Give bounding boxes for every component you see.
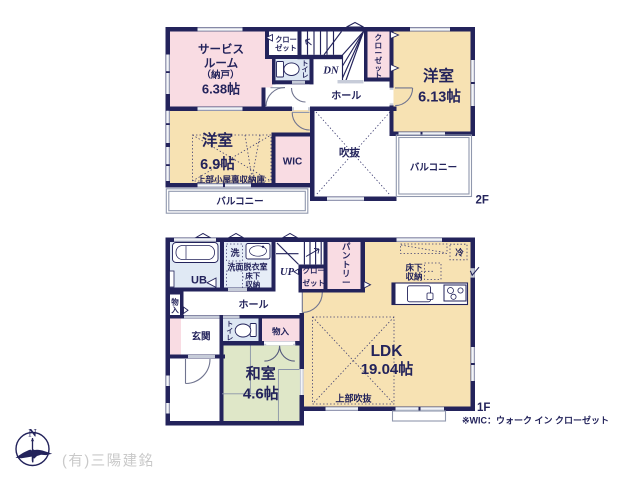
svg-text:収納: 収納 bbox=[405, 272, 422, 282]
svg-text:物入: 物入 bbox=[272, 327, 290, 337]
svg-text:洗面脱衣室: 洗面脱衣室 bbox=[228, 262, 268, 272]
svg-text:※WIC：ウォーク イン クローゼット: ※WIC：ウォーク イン クローゼット bbox=[462, 415, 609, 426]
svg-text:2F: 2F bbox=[476, 195, 489, 207]
svg-text:洗: 洗 bbox=[230, 247, 239, 258]
svg-text:ゼット: ゼット bbox=[275, 44, 297, 53]
svg-text:バルコニー: バルコニー bbox=[216, 196, 263, 208]
svg-text:DN: DN bbox=[322, 66, 339, 77]
svg-text:ー: ー bbox=[342, 278, 351, 288]
svg-text:ト: ト bbox=[226, 320, 233, 328]
svg-text:洋室: 洋室 bbox=[202, 131, 233, 150]
svg-text:レ: レ bbox=[226, 334, 233, 342]
svg-text:玄関: 玄関 bbox=[191, 331, 210, 343]
svg-text:6.9帖: 6.9帖 bbox=[200, 155, 235, 173]
svg-text:4.6帖: 4.6帖 bbox=[243, 385, 279, 403]
svg-text:バルコニー: バルコニー bbox=[410, 162, 457, 174]
svg-text:6.13帖: 6.13帖 bbox=[418, 88, 461, 106]
svg-text:床下: 床下 bbox=[245, 271, 260, 281]
svg-text:クロー: クロー bbox=[303, 265, 326, 275]
svg-text:ルーム: ルーム bbox=[204, 57, 239, 70]
svg-text:上部小屋裏収納庫: 上部小屋裏収納庫 bbox=[197, 175, 266, 185]
svg-text:WIC: WIC bbox=[283, 157, 302, 168]
svg-text:吹抜: 吹抜 bbox=[339, 146, 360, 159]
svg-text:和室: 和室 bbox=[246, 365, 276, 383]
svg-text:洋室: 洋室 bbox=[423, 66, 454, 85]
svg-text:イ: イ bbox=[226, 327, 233, 335]
svg-text:19.04帖: 19.04帖 bbox=[361, 360, 414, 378]
svg-text:UB: UB bbox=[191, 275, 207, 287]
svg-text:1F: 1F bbox=[477, 402, 490, 414]
svg-text:サービス: サービス bbox=[198, 42, 244, 56]
svg-text:入: 入 bbox=[170, 306, 179, 315]
svg-text:ホール: ホール bbox=[239, 299, 269, 311]
svg-text:レ: レ bbox=[302, 72, 309, 80]
svg-text:上部吹抜: 上部吹抜 bbox=[335, 393, 372, 404]
svg-text:（納戸）: （納戸） bbox=[201, 69, 239, 81]
svg-text:ホール: ホール bbox=[331, 90, 361, 102]
svg-text:収納: 収納 bbox=[245, 279, 260, 289]
svg-text:UP: UP bbox=[280, 267, 295, 278]
svg-text:LDK: LDK bbox=[371, 343, 404, 360]
svg-text:ト: ト bbox=[375, 71, 383, 80]
svg-text:(有)三陽建銘: (有)三陽建銘 bbox=[62, 453, 155, 470]
svg-text:冷: 冷 bbox=[455, 248, 464, 258]
svg-text:ゼット: ゼット bbox=[303, 278, 326, 288]
svg-text:6.38帖: 6.38帖 bbox=[202, 82, 240, 97]
svg-text:N: N bbox=[28, 428, 37, 440]
